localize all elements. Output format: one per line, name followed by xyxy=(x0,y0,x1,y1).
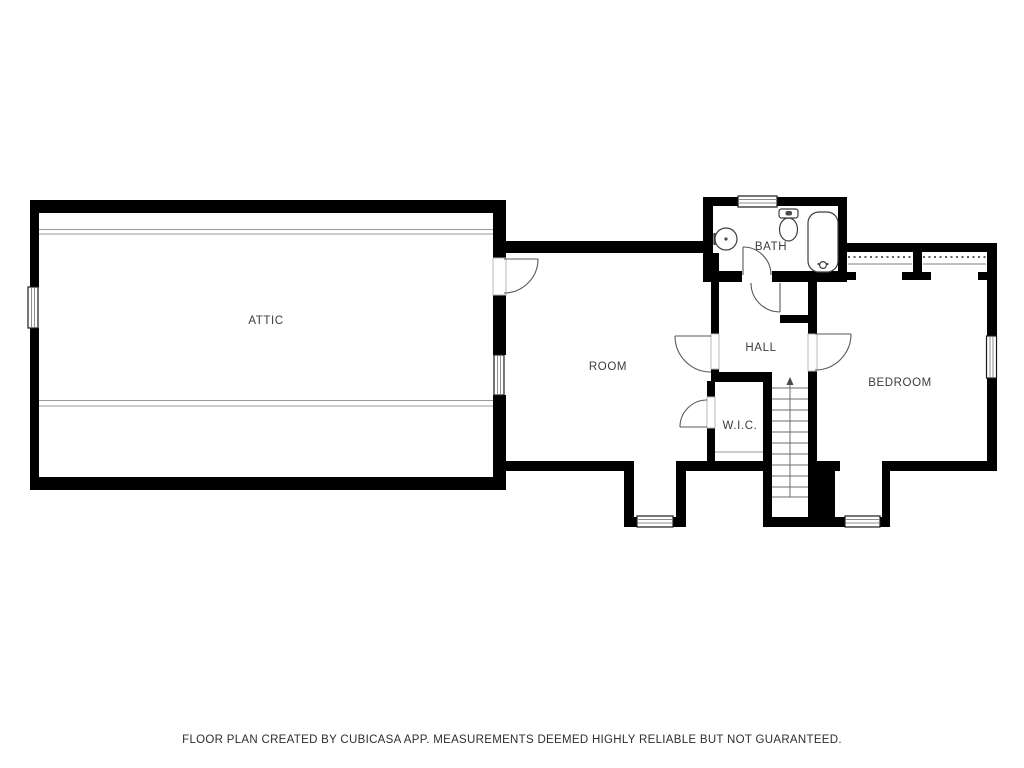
center-room: ROOM xyxy=(493,241,711,471)
hall-closet xyxy=(751,283,817,323)
attic-door-opening xyxy=(493,258,506,295)
hall-closet-door xyxy=(751,283,780,312)
bathtub-fixture xyxy=(808,212,838,272)
stairs-up-arrow xyxy=(786,377,793,385)
wic-room: W.I.C. xyxy=(680,372,772,527)
sink-fixture xyxy=(715,228,738,250)
attic-label: ATTIC xyxy=(248,315,283,327)
attic-room-door xyxy=(504,259,538,293)
bath-room: BATH xyxy=(703,196,847,282)
toilet-fixture xyxy=(779,209,798,241)
attic-right-window xyxy=(494,355,504,395)
room-door-opening xyxy=(711,334,719,369)
south-wall xyxy=(676,461,772,471)
disclaimer-text: FLOOR PLAN CREATED BY CUBICASA APP. MEAS… xyxy=(0,734,1024,746)
floor-plan-page: ATTIC ROOM xyxy=(0,0,1024,768)
wic-label: W.I.C. xyxy=(723,420,758,432)
attic-left-window xyxy=(28,287,38,328)
staircase xyxy=(763,377,890,527)
hall-bedroom-door xyxy=(815,334,851,370)
bedroom-room: BEDROOM xyxy=(843,243,997,527)
bedroom-dormer-window xyxy=(845,516,880,527)
bath-label: BATH xyxy=(755,241,787,253)
bedroom-closets xyxy=(845,252,987,280)
wic-door xyxy=(680,400,707,427)
floor-plan-drawing: ATTIC ROOM xyxy=(0,0,1024,768)
bedroom-door-opening xyxy=(808,334,817,371)
room-label: ROOM xyxy=(589,361,627,373)
bath-window xyxy=(738,196,777,207)
attic-room: ATTIC xyxy=(28,200,506,490)
hall-label: HALL xyxy=(745,342,776,354)
bedroom-label: BEDROOM xyxy=(868,377,932,389)
room-dormer-window xyxy=(637,516,673,527)
bedroom-window xyxy=(987,336,997,378)
wic-door-opening xyxy=(707,397,715,428)
hall-room-door xyxy=(675,336,711,372)
